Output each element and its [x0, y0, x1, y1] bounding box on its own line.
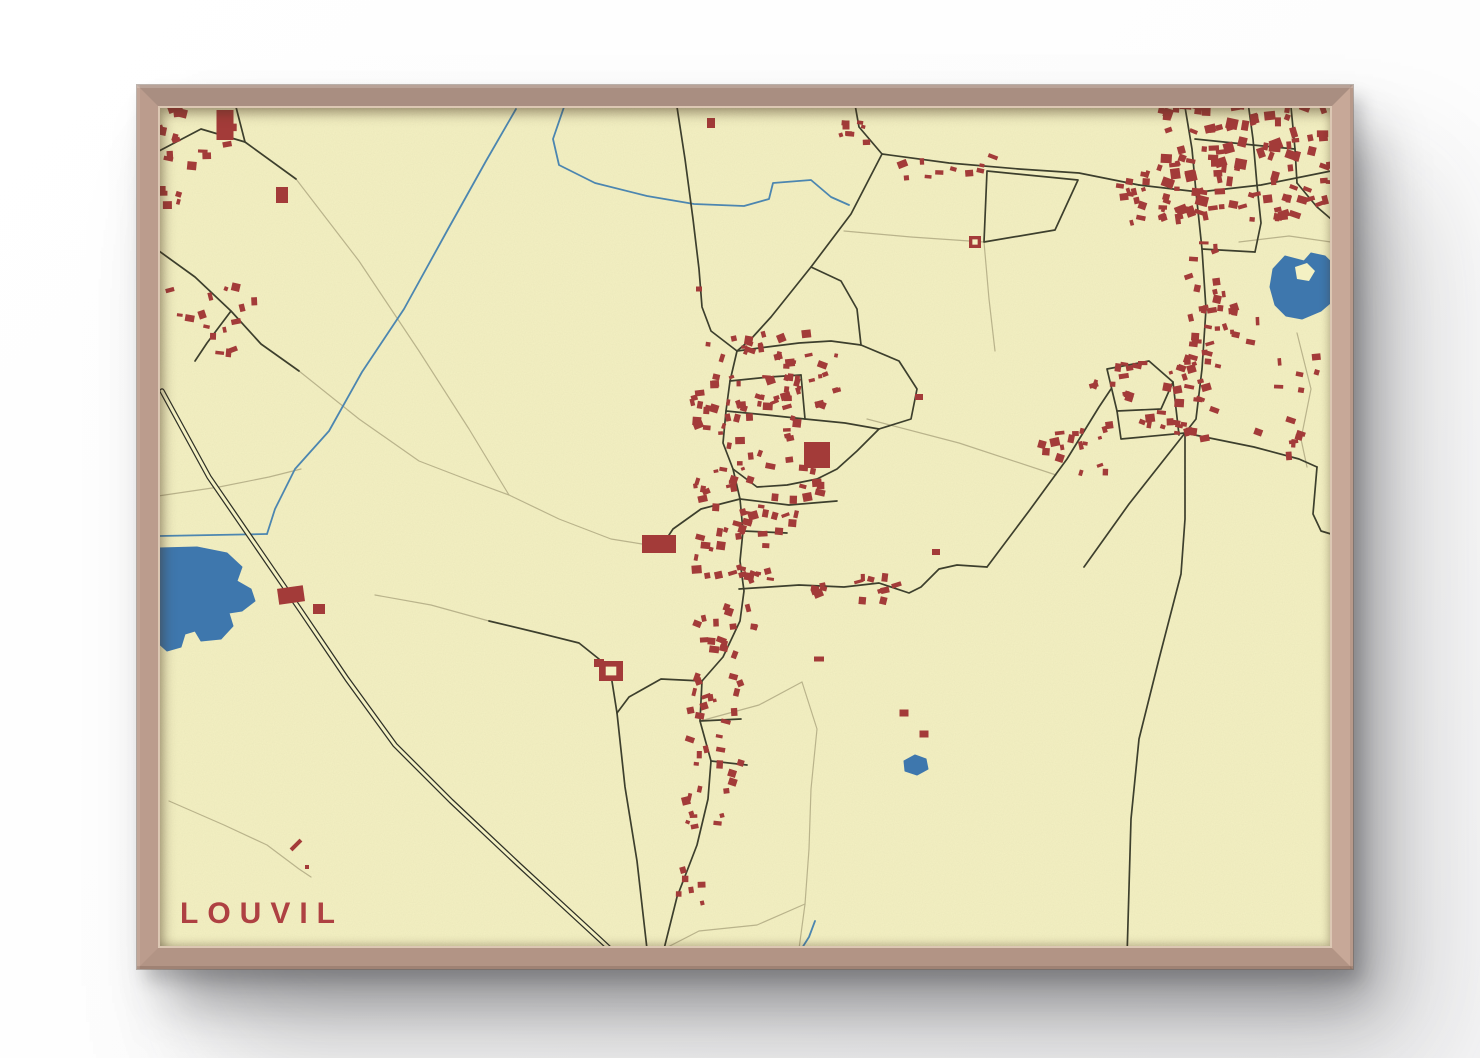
map-poster: LOUVIL	[158, 106, 1332, 948]
map-title: LOUVIL	[180, 899, 344, 929]
wall-background: LOUVIL	[0, 0, 1480, 1058]
poster-frame: LOUVIL	[137, 85, 1353, 969]
map-canvas	[158, 106, 1332, 948]
